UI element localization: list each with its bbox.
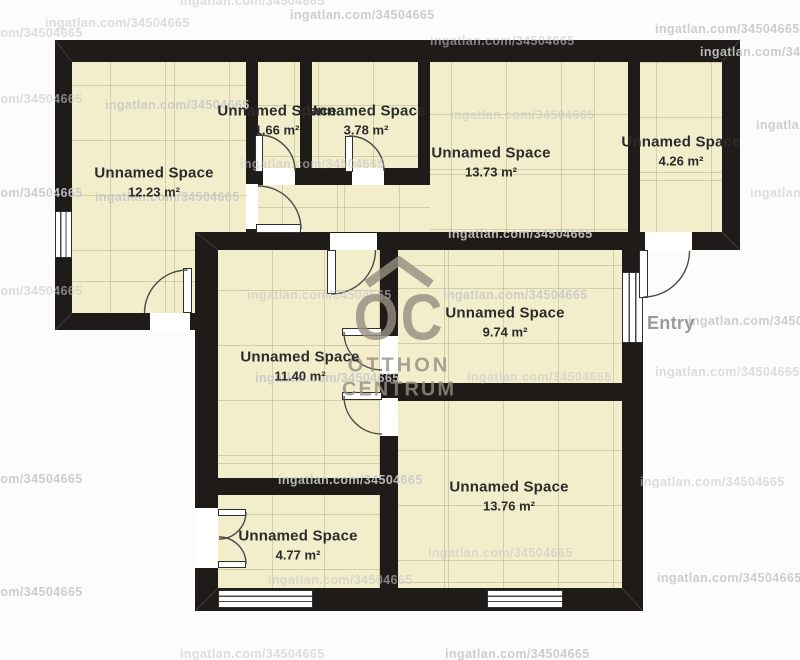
site-watermark: ingatlan.com/34504665	[240, 157, 385, 171]
room-label: Unnamed Space3.78 m²	[306, 102, 425, 137]
room-label: Unnamed Space9.74 m²	[445, 304, 564, 339]
site-watermark: ingatlan.com/34504665	[640, 475, 785, 489]
window	[487, 590, 563, 608]
door-opening	[380, 336, 398, 374]
window	[218, 590, 313, 608]
site-watermark: ingatlan.com/34504665	[268, 573, 413, 587]
room-area: 4.77 m²	[238, 548, 357, 563]
site-watermark: ingatlan.com/34504665	[0, 284, 83, 298]
site-watermark: ingatlan.com/34504665	[278, 473, 423, 487]
site-watermark: ingatlan.com/34504665	[450, 108, 595, 122]
site-watermark: ingatlan.com/34504665	[0, 92, 83, 106]
door-opening	[330, 233, 377, 250]
door-opening	[246, 184, 258, 229]
site-watermark: ingatlan.com/34504665	[428, 546, 573, 560]
site-watermark: ingatlan.com/34504665	[750, 186, 800, 200]
site-watermark: ingatlan.com/34504665	[247, 288, 392, 302]
room-area: 9.74 m²	[445, 325, 564, 340]
entry-door-arc	[644, 251, 690, 297]
entry-door-opening	[645, 232, 692, 250]
room-label: Unnamed Space13.76 m²	[449, 478, 568, 513]
site-watermark: ingatlan.com/34504665	[0, 472, 83, 486]
site-watermark: ingatlan.com/34504665	[657, 571, 800, 585]
site-watermark: ingatlan.com/34504665	[430, 34, 575, 48]
site-watermark: ingatlan.com/34504665	[445, 647, 590, 660]
door-leaf	[342, 328, 382, 336]
site-watermark: ingatlan.com/34504665	[467, 370, 612, 384]
door-opening	[380, 398, 398, 436]
site-watermark: ingatlan.com/34504665	[700, 45, 800, 59]
wall	[55, 313, 218, 330]
entry-label: Entry	[647, 313, 695, 334]
room-area: 12.23 m²	[94, 185, 213, 200]
room-area: 13.73 m²	[431, 165, 550, 180]
room-area: 4.26 m²	[621, 154, 740, 169]
site-watermark: ingatlan.com/34504665	[0, 186, 83, 200]
site-watermark: ingatlan.com/34504665	[0, 26, 83, 40]
site-watermark: ingatlan.com/34504665	[180, 647, 325, 660]
room-name: Unnamed Space	[240, 348, 359, 365]
room-area: 11.40 m²	[240, 369, 359, 384]
window	[55, 211, 72, 258]
door-opening	[150, 313, 190, 330]
door-leaf	[256, 224, 301, 233]
room-name: Unnamed Space	[445, 304, 564, 321]
room-name: Unnamed Space	[621, 133, 740, 150]
site-watermark: ingatlan.com/34504665	[448, 227, 593, 241]
room-name: Unnamed Space	[238, 527, 357, 544]
door-leaf	[342, 392, 382, 400]
room-area: 13.76 m²	[449, 499, 568, 514]
room-area: 3.78 m²	[306, 123, 425, 138]
door-leaf	[218, 509, 246, 516]
room-label: Unnamed Space4.26 m²	[621, 133, 740, 168]
wall	[55, 40, 740, 62]
site-watermark: ingatlan.com/34504665	[655, 365, 800, 379]
site-watermark: ingatlan.com/34504665	[756, 118, 800, 132]
site-watermark: ingatlan.com/34504665	[0, 585, 83, 599]
wall	[398, 383, 622, 401]
floorplan-canvas: ingatlan.com/34504665ingatlan.com/345046…	[0, 0, 800, 660]
site-watermark: ingatlan.com/34504665	[443, 288, 588, 302]
room-label: Unnamed Space13.73 m²	[431, 144, 550, 179]
room-name: Unnamed Space	[94, 164, 213, 181]
site-watermark: ingatlan.com/34504665	[655, 22, 800, 36]
site-watermark: ingatlan.com/34504665	[180, 0, 325, 8]
entry-door-leaf	[639, 250, 648, 298]
room-label: Unnamed Space12.23 m²	[94, 164, 213, 199]
room-name: Unnamed Space	[431, 144, 550, 161]
room-label: Unnamed Space11.40 m²	[240, 348, 359, 383]
room-label: Unnamed Space4.77 m²	[238, 527, 357, 562]
double-door-opening	[195, 508, 218, 568]
room-name: Unnamed Space	[306, 102, 425, 119]
site-watermark: ingatlan.com/34504665	[290, 8, 435, 22]
door-leaf	[183, 268, 192, 313]
room-name: Unnamed Space	[449, 478, 568, 495]
site-watermark: ingatlan.com/34504665	[688, 314, 800, 328]
